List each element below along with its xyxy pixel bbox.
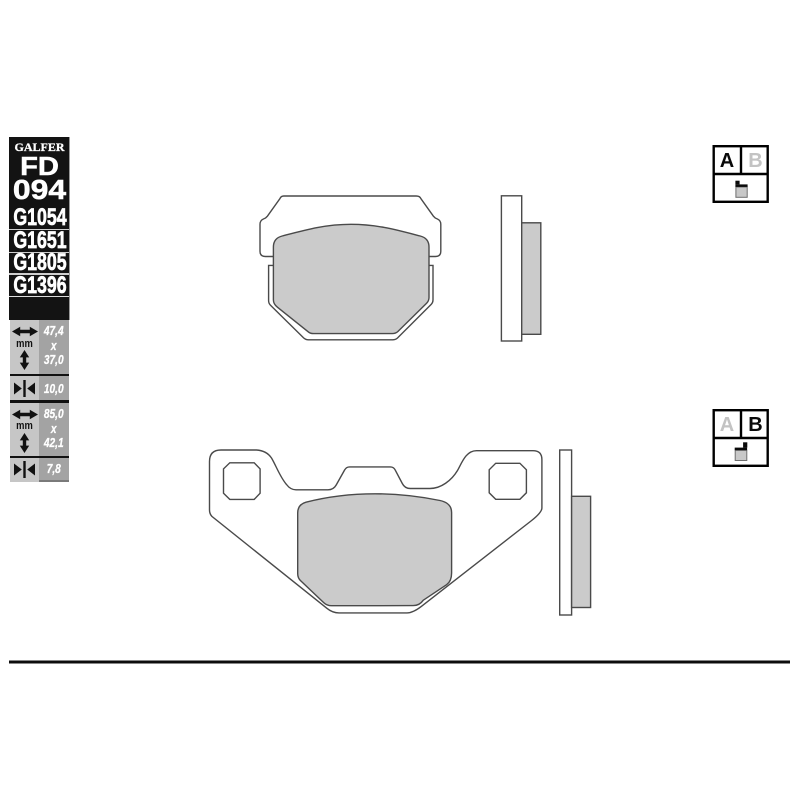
svg-text:A: A	[720, 414, 734, 436]
svg-text:B: B	[748, 150, 762, 172]
svg-text:A: A	[720, 150, 734, 172]
svg-text:B: B	[748, 414, 762, 436]
